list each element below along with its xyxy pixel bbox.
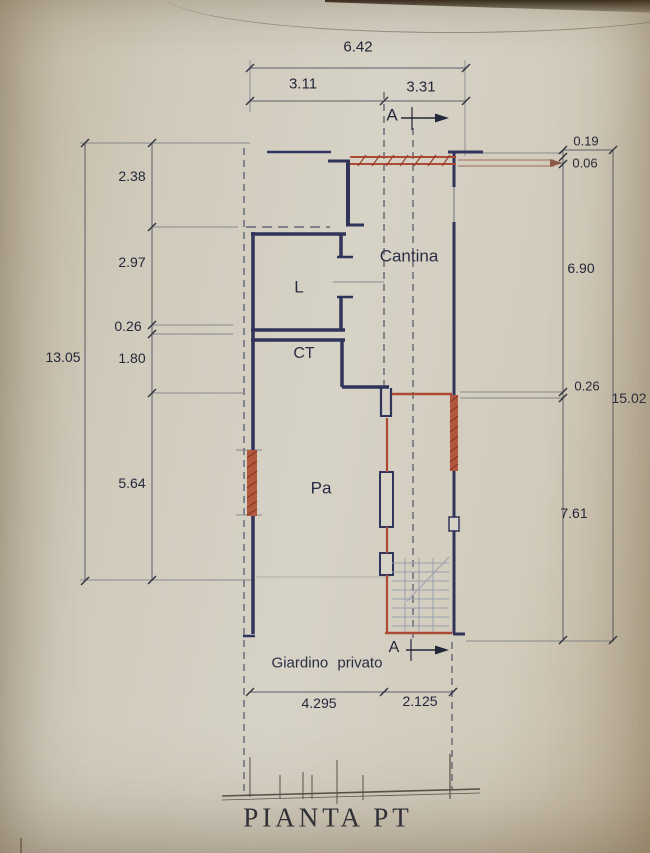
wall-extension-lines	[458, 159, 563, 167]
section-arrow-bottom	[406, 639, 449, 661]
dim-left-5: 5.64	[118, 476, 145, 490]
dimension-ticks	[81, 64, 617, 696]
dim-left-2: 2.97	[118, 255, 145, 269]
dim-top-right: 3.31	[406, 80, 435, 95]
dim-left-3: 0.26	[114, 319, 141, 333]
dim-top-total: 6.42	[343, 40, 372, 55]
section-label-top: A	[386, 107, 397, 124]
dim-left-total: 13.05	[45, 350, 80, 364]
dim-bottom-right: 2.125	[402, 694, 437, 708]
plan-title: PIANTA PT	[243, 805, 413, 832]
section-label-bottom: A	[389, 640, 400, 656]
staircase	[392, 557, 449, 632]
dim-left-4: 1.80	[118, 351, 145, 365]
room-label-ct: CT	[293, 346, 314, 362]
dim-right-2: 0.06	[572, 157, 597, 170]
plan-linework	[0, 0, 650, 853]
floor-plan-sheet: 6.42 3.11 3.31 A A 13.05 2.38 2.97 0.26 …	[0, 0, 650, 853]
garden-label: Giardino privato	[272, 656, 383, 671]
room-label-cantina: Cantina	[380, 248, 439, 265]
section-arrow-top	[401, 107, 449, 130]
dim-right-5: 7.61	[560, 506, 587, 520]
dim-right-4: 0.26	[574, 380, 599, 393]
ground-line	[222, 754, 480, 804]
dim-top-left: 3.11	[289, 77, 317, 92]
dim-right-total: 15.02	[611, 391, 646, 405]
dim-right-3: 6.90	[567, 261, 594, 275]
room-label-pa: Pa	[311, 480, 332, 497]
dim-left-1: 2.38	[118, 169, 145, 183]
extension-lines	[80, 60, 614, 641]
room-label-l: L	[294, 279, 303, 296]
dim-bottom-left: 4.295	[301, 696, 336, 710]
dim-right-1: 0.19	[573, 135, 598, 148]
